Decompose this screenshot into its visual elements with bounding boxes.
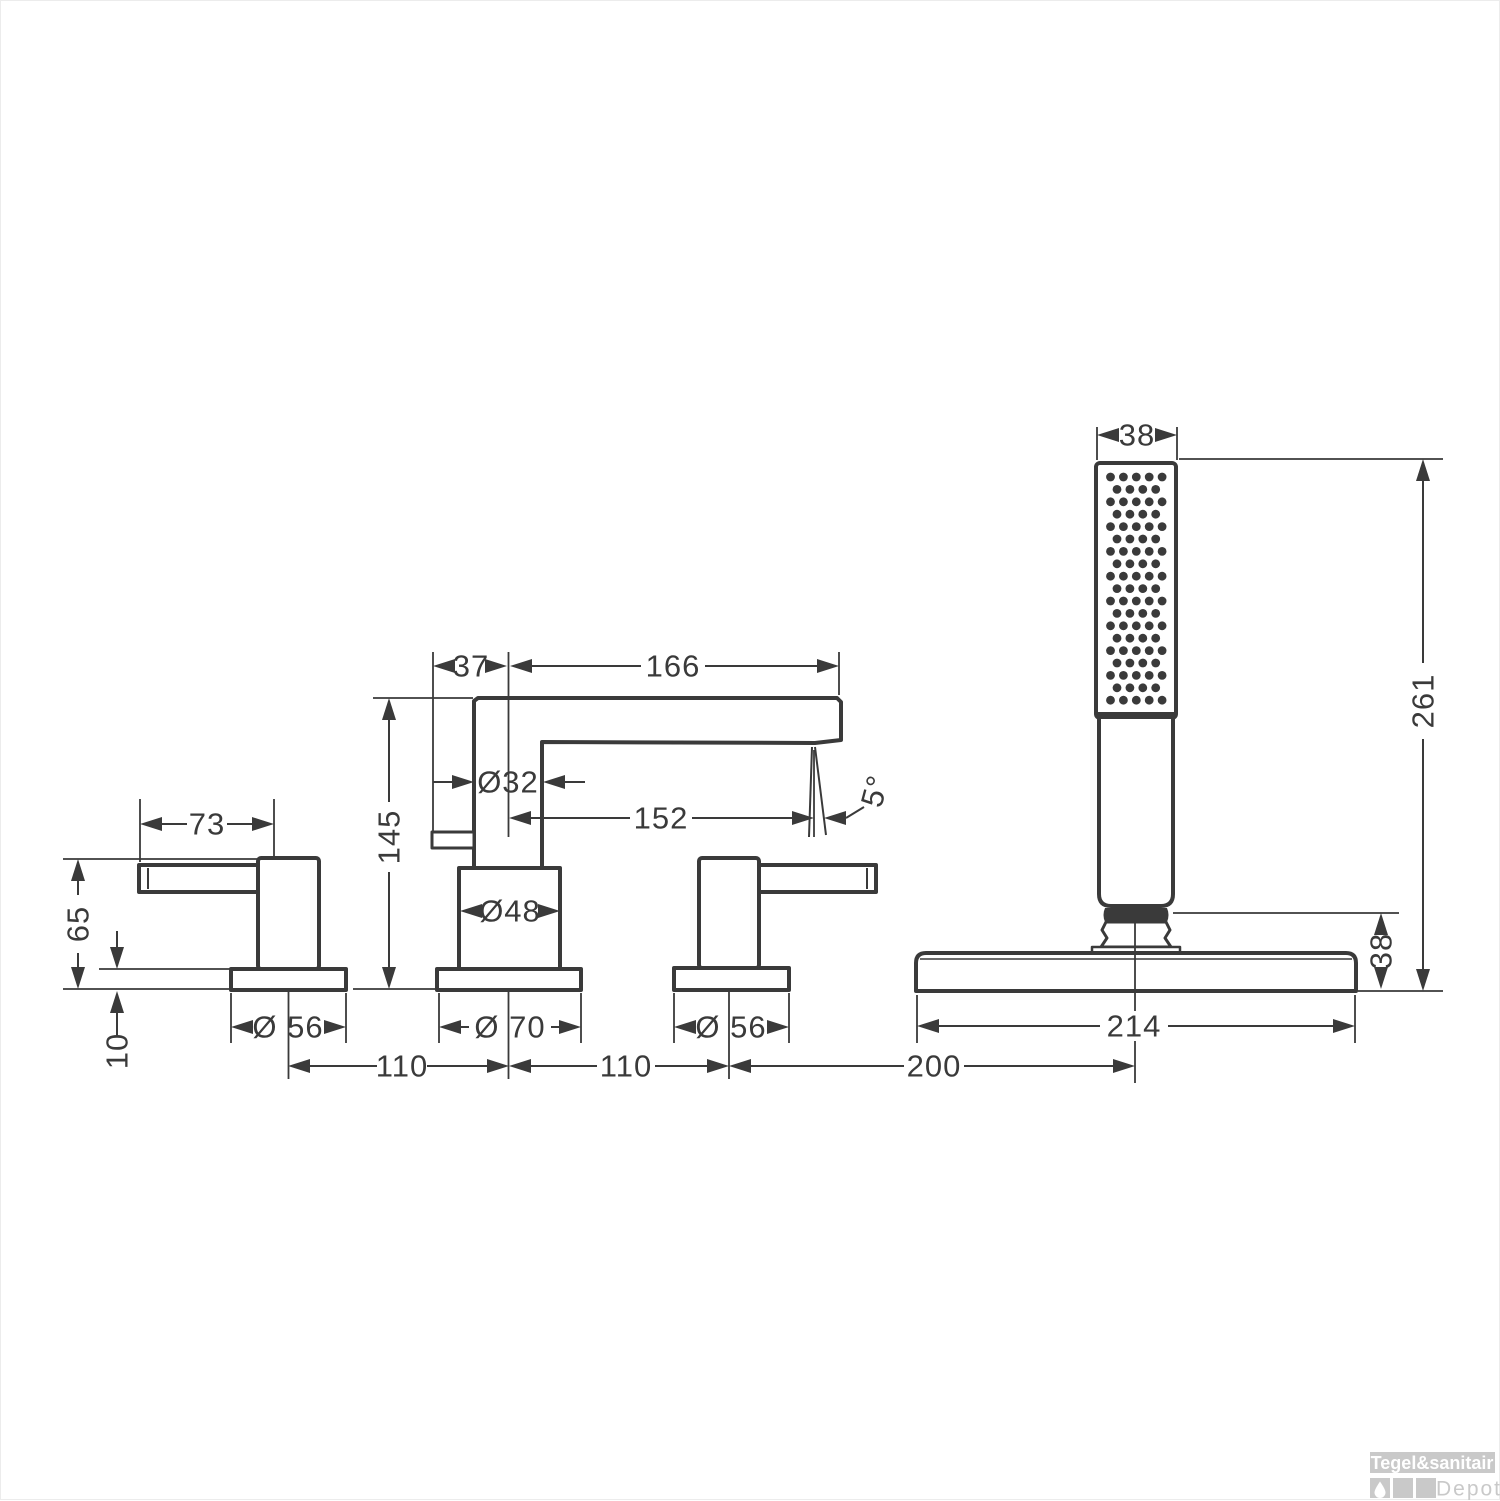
dim-65: 65 [61, 906, 96, 942]
dim-110-left: 110 [376, 1049, 428, 1084]
dim-166: 166 [646, 649, 701, 684]
watermark-logo: Tegel&sanitair Depot [1370, 1452, 1500, 1501]
dim-5deg: 5° [854, 771, 896, 811]
dim-37: 37 [453, 649, 489, 684]
technical-drawing-page: 73 65 10 Ø 56 110 37 166 Ø32 152 5° 145 … [0, 0, 1500, 1500]
dim-73: 73 [189, 807, 225, 842]
dim-10: 10 [100, 1033, 135, 1069]
shower-holder-cone [1101, 922, 1171, 947]
left-handle-outline [139, 858, 346, 990]
dim-dia32: Ø32 [477, 765, 539, 800]
dim-152: 152 [634, 801, 689, 836]
logo-brand-text: Tegel&sanitair [1371, 1453, 1494, 1473]
dim-110-right: 110 [600, 1049, 652, 1084]
dim-38-right: 38 [1364, 933, 1399, 969]
spout-outline [432, 698, 841, 990]
dim-145: 145 [372, 810, 407, 865]
dim-dia56-left: Ø 56 [252, 1010, 323, 1045]
dim-200: 200 [907, 1049, 962, 1084]
logo-square-2 [1393, 1478, 1413, 1498]
outlet-angle-lines [809, 747, 826, 837]
dim-dia56-right: Ø 56 [695, 1010, 766, 1045]
right-handle-outline [674, 858, 876, 990]
shower-connector-nut [1104, 908, 1169, 922]
dim-dia70: Ø 70 [474, 1010, 545, 1045]
logo-square-3 [1416, 1478, 1436, 1498]
bath-mixer-dimension-drawing: 73 65 10 Ø 56 110 37 166 Ø32 152 5° 145 … [1, 1, 1500, 1501]
logo-sub-text: Depot [1436, 1478, 1500, 1501]
diverter-tab [432, 832, 474, 848]
dim-214: 214 [1107, 1009, 1162, 1044]
dim-261: 261 [1406, 674, 1441, 729]
shower-handle [1099, 719, 1173, 906]
dim-38-top: 38 [1119, 418, 1155, 453]
dim-dia48: Ø48 [479, 894, 541, 929]
